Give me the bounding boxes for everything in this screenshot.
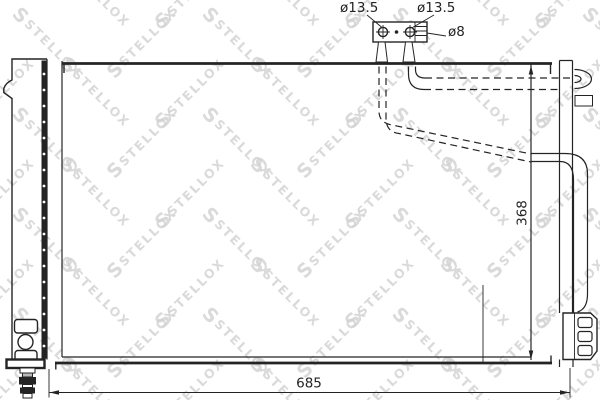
pipe-bracket-tab xyxy=(575,96,593,107)
vertical-pipe xyxy=(560,61,573,314)
condenser-core xyxy=(55,61,552,370)
pipe-stubs-below-block xyxy=(560,360,574,368)
dim-label-core-height: 368 xyxy=(516,200,530,226)
bracket-leg-right xyxy=(403,42,415,62)
condenser-line-drawing xyxy=(0,0,600,400)
mounting-bracket xyxy=(373,22,427,62)
width-arrow-right xyxy=(560,390,570,394)
tank-bottom-cap xyxy=(7,360,45,369)
connector-block xyxy=(563,313,597,360)
tank-mount-hole xyxy=(18,335,33,350)
hidden-pipe-outer xyxy=(379,67,531,155)
bracket-center-hole xyxy=(395,30,399,34)
top-pipe-end-cap-inner xyxy=(575,76,582,83)
leader-pipe-dia xyxy=(427,33,446,36)
left-tank xyxy=(4,59,47,398)
dim-label-overall-width: 685 xyxy=(296,377,322,391)
pipe-assembly xyxy=(379,61,593,368)
width-arrow-left xyxy=(50,390,60,394)
hidden-pipe-inner xyxy=(386,67,531,163)
top-pipe-end-cap-outer xyxy=(575,70,592,89)
top-pipe-bend-inner xyxy=(416,67,426,79)
service-fitting xyxy=(19,368,36,398)
technical-drawing-canvas: SSTELLOXSSTELLOXSSTELLOXSSTELLOXSSTELLOX… xyxy=(0,0,600,400)
dim-label-pipe-dia: ø8 xyxy=(448,26,465,40)
dimension-lines xyxy=(49,15,570,398)
height-arrow-bottom xyxy=(529,351,534,360)
dim-label-hole-right: ø13.5 xyxy=(417,2,455,16)
dim-label-hole-left: ø13.5 xyxy=(340,2,378,16)
right-pipe-inner xyxy=(531,162,574,314)
tank-mount-slot-upper xyxy=(15,320,38,334)
tank-outline xyxy=(4,59,47,360)
bracket-leg-left xyxy=(376,42,388,62)
height-arrow-top xyxy=(529,66,534,75)
